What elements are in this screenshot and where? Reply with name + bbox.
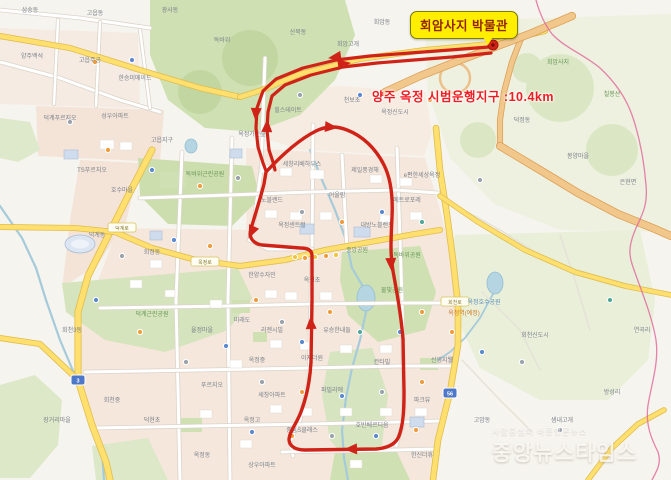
route-shield: 3 [71,375,85,385]
map-place-label: 메트로포레 [393,196,421,204]
map-place-label: 노블랜드 [261,196,284,204]
map-place-label: 샘내고개 [551,416,573,424]
poi-marker-icon[interactable] [339,219,344,224]
map-place-label: 힐스테이트 [274,106,302,114]
map-place-label: 파크뷰 [414,396,431,404]
poi-marker-icon[interactable] [373,433,378,438]
poi-marker-icon[interactable] [479,349,484,354]
map-place-label: 물빛공원 [381,286,403,294]
map-place-label: 회암고개 [337,40,359,48]
poi-marker-icon[interactable] [327,309,332,314]
poi-marker-icon[interactable] [329,433,334,438]
map-place-label: 칠봉산 [604,90,621,98]
map-place-label: 호반베르디움 [355,421,389,429]
map-place-label: 옥정신도시 [381,108,409,116]
map-place-label: 덕계푸르지오 [43,114,77,122]
map-place-label: 독바위공원 [393,251,421,259]
map-place-label: 산북동 [290,28,307,36]
map-place-label: 회천중 [104,396,121,404]
poi-marker-icon[interactable] [197,183,202,188]
map-place-label: 대방노블랜드 [360,221,394,229]
poi-marker-icon[interactable] [105,147,110,152]
route-shield: 56 [443,388,457,398]
route-distance-label: 양주 옥정 시범운행지구 :10.4km [372,86,554,105]
map-place-label: 유승한내들 [323,326,351,334]
svg-text:56: 56 [447,391,453,397]
road-name-pill: 회천로 [441,297,469,306]
poi-marker-icon[interactable] [419,379,424,384]
map-place-label: 파밀리에 [321,386,343,394]
map-place-label: 옥정센트럴 [278,221,306,229]
map-place-label: 고암동 [474,416,491,424]
map-place-label: 옥정중 [249,357,266,364]
poi-marker-icon[interactable] [419,219,424,224]
poi-marker-icon[interactable] [339,393,344,398]
map-place-label: 삼숭동 [22,6,39,14]
map-place-label: 덕계근린공원 [135,310,168,318]
map-place-label: 장거리마을 [43,416,71,424]
poi-marker-icon[interactable] [93,297,98,302]
map-place-label: 어울림 [329,191,346,199]
map-place-label: 세창리베하우스 [283,160,322,168]
poi-marker-icon[interactable] [477,177,482,182]
poi-marker-icon[interactable] [119,253,124,258]
svg-text:덕계로: 덕계로 [115,225,129,232]
basemap-layer: 덕계로옥정로회천로356삼숭동고읍동광사동양주백석고읍주공한승미메이드덕계푸르지… [0,0,671,480]
map-place-label: 덕현초 [144,416,161,424]
poi-marker-icon[interactable] [249,429,254,434]
museum-callout: 회암사지 박물관 [410,11,518,39]
map-place-label: 덕계동 [89,231,106,239]
map-place-label: 덕정동 [514,117,531,124]
map-place-label: 율정마을 [191,326,214,334]
map-place-label: 옥정고 [244,417,261,424]
map-place-label: 옥정호수공원 [467,298,500,306]
map-place-label: 상우아파트 [248,461,276,469]
museum-callout-label: 회암사지 박물관 [420,19,508,33]
poi-marker-icon[interactable] [299,339,304,344]
map-place-label: 호수마을 [111,186,134,194]
map-place-label: 고읍주공 [79,57,102,64]
poi-marker-icon[interactable] [519,359,524,364]
map-place-label: 푸르지오 [201,381,224,389]
poi-marker-icon[interactable] [379,209,384,214]
map-place-label: 한양수자인 [248,271,276,279]
poi-marker-icon[interactable] [137,329,142,334]
poi-marker-icon[interactable] [607,297,612,302]
poi-marker-icon[interactable] [379,389,384,394]
map-place-label: 봉양마을 [567,152,590,160]
svg-text:3: 3 [76,378,79,384]
map-place-label: 연곡리 [634,326,651,334]
poi-marker-icon[interactable] [302,255,307,260]
map-place-label: 리젠시빌 [261,326,283,334]
map-place-label: 방성리 [604,388,621,396]
map-place-label: 한신더휴 [411,451,434,459]
poi-marker-icon[interactable] [299,209,304,214]
map-place-label: 천보초 [344,96,361,104]
poi-marker-icon[interactable] [235,175,240,180]
poi-marker-icon[interactable] [297,92,302,97]
map-place-label: 회천신도시 [521,331,549,339]
poi-marker-icon[interactable] [323,253,328,258]
svg-text:회천로: 회천로 [448,299,462,306]
poi-marker-icon[interactable] [149,167,154,172]
map-place-label: 회천3동 [62,326,82,334]
map-place-label: 칸타빌 [374,358,391,366]
poi-marker-icon[interactable] [129,57,134,62]
poi-marker-icon[interactable] [357,92,362,97]
poi-marker-icon[interactable] [171,237,176,242]
map-place-label: 옥정동 [194,452,211,459]
map-canvas: 덕계로옥정로회천로356삼숭동고읍동광사동양주백석고읍주공한승미메이드덕계푸르지… [0,0,671,480]
poi-marker-icon[interactable] [259,379,264,384]
road-name-pill: 덕계로 [108,223,136,232]
poi-marker-icon[interactable] [207,243,212,248]
map-place-label: 중앙공원 [346,246,368,254]
poi-marker-icon[interactable] [279,319,284,324]
map-place-label: 옥정역(예정) [448,309,480,317]
poi-marker-icon[interactable] [357,329,362,334]
map-place-label: 독바위 [214,36,231,44]
poi-marker-icon[interactable] [292,254,297,259]
map-place-label: TS푸르지오 [77,166,107,174]
poi-marker-icon[interactable] [253,297,258,302]
map-place-label: 신영지웰 [431,356,454,364]
map-place-label: 회암사지 [547,58,569,66]
map-viewport[interactable]: 덕계로옥정로회천로356삼숭동고읍동광사동양주백석고읍주공한승미메이드덕계푸르지… [0,0,671,480]
map-place-label: 양주백석 [21,52,43,60]
map-place-label: 독바위근린공원 [186,170,225,178]
map-place-label: 고읍지구 [151,136,174,144]
road-name-pill: 옥정로 [191,257,219,266]
poi-marker-icon[interactable] [449,329,454,334]
map-place-label: 광사동 [162,6,179,14]
svg-text:옥정로: 옥정로 [198,259,212,266]
map-place-label: 은현면 [620,178,637,186]
map-place-label: 고읍동 [87,10,104,17]
poi-marker-icon[interactable] [419,309,424,314]
poi-marker-icon[interactable] [223,343,228,348]
map-place-label: 성우아파트 [101,112,129,120]
callout-pointer [483,37,493,45]
map-place-label: 세창아파트 [258,391,286,399]
map-place-label: 제일풍경채 [351,166,379,174]
poi-marker-icon[interactable] [413,427,418,432]
map-place-label: e편한세상옥정 [404,171,440,179]
map-place-label: 회정동 [144,248,161,256]
map-place-label: 미래도 [234,316,251,324]
map-place-label: 한승미메이드 [118,74,152,82]
poi-marker-icon[interactable] [333,252,338,257]
map-place-label: 회암동 [374,18,391,26]
poi-marker-icon[interactable] [183,359,188,364]
poi-marker-icon[interactable] [299,389,304,394]
poi-marker-icon[interactable] [557,427,562,432]
